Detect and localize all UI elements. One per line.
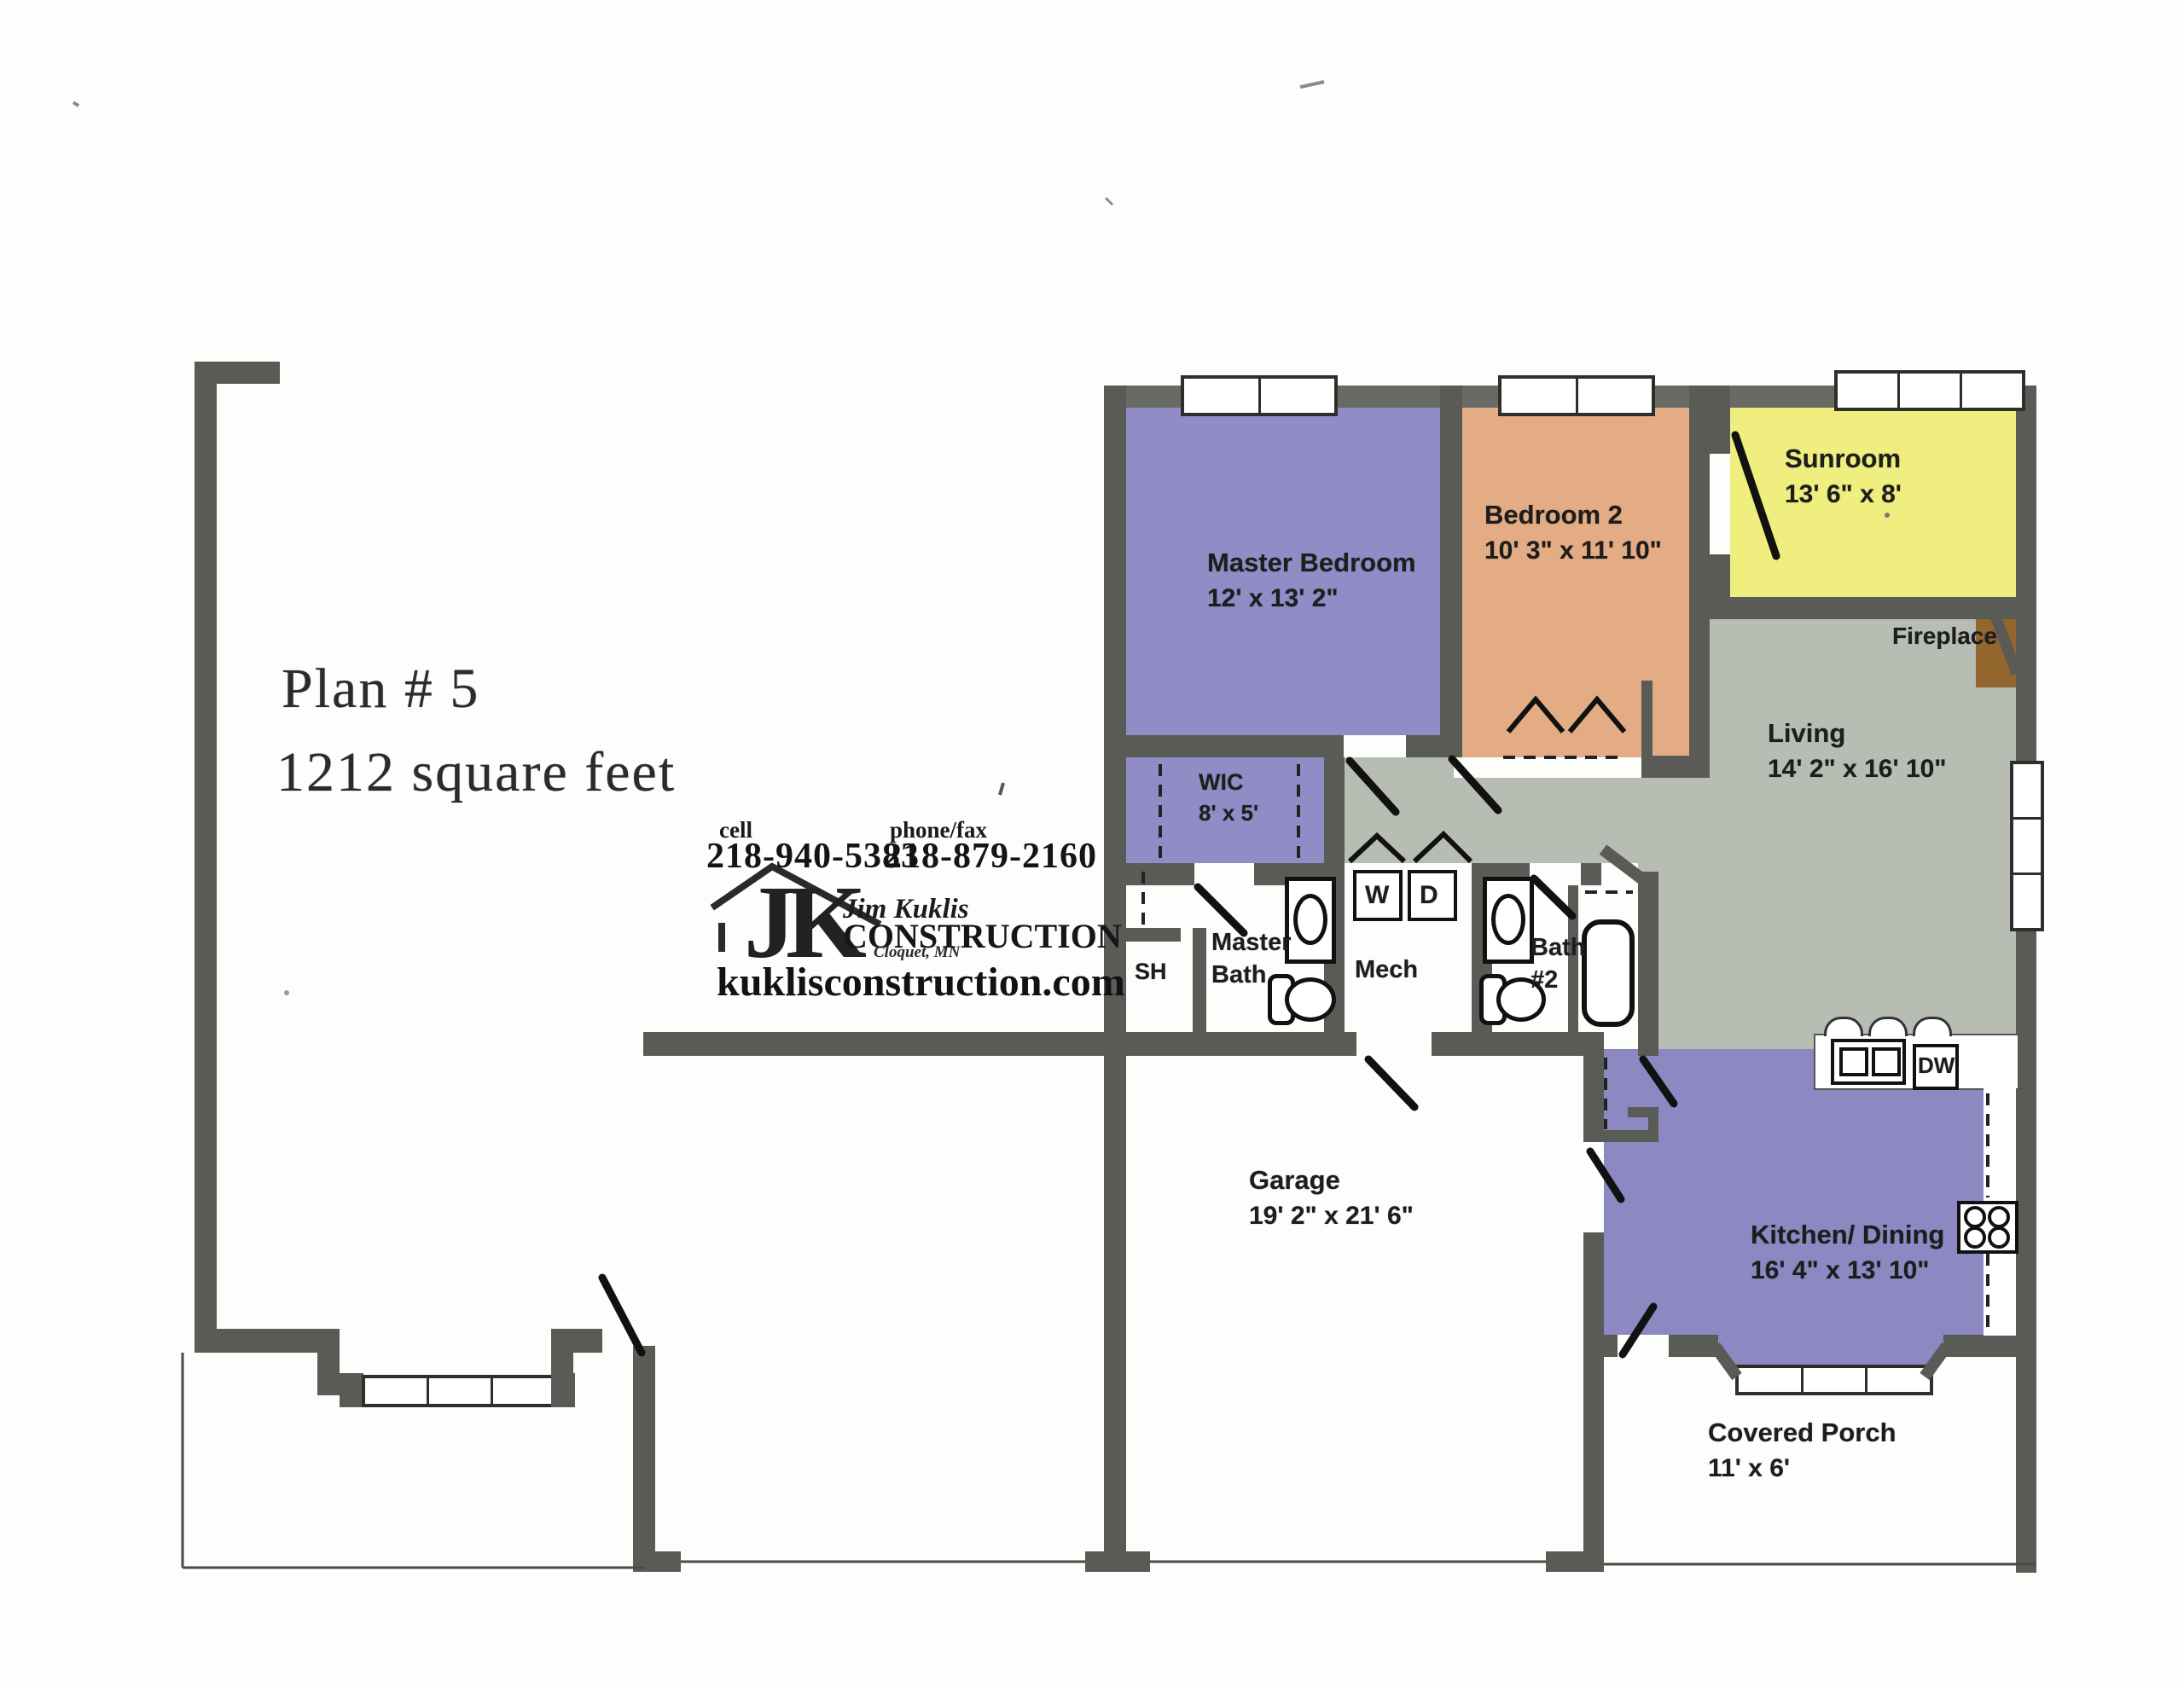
bath2-sink-bowl <box>1491 894 1525 945</box>
kitchen-porch-wall-c <box>1943 1335 2016 1357</box>
bedroom2-label: Bedroom 2 10' 3" x 11' 10" <box>1484 498 1662 568</box>
left-boundary-wall <box>195 362 217 1353</box>
bedroom2-right-wall <box>1689 386 1710 778</box>
sunroom-name: Sunroom <box>1785 443 1901 473</box>
garage-label: Garage 19' 2" x 21' 6" <box>1249 1163 1414 1233</box>
stove-burner-3 <box>1964 1226 1986 1249</box>
plan-title: Plan # 5 <box>282 657 479 722</box>
garage-bottom-wall-b <box>1085 1551 1150 1572</box>
bay-left-jamb <box>340 1373 363 1407</box>
garage-dims: 19' 2" x 21' 6" <box>1249 1202 1414 1230</box>
pantry-l-wall-v <box>1648 1107 1658 1141</box>
fireplace-label: Fireplace <box>1892 621 1997 652</box>
bay-left-step-wall <box>317 1329 340 1395</box>
stove-burner-1 <box>1964 1206 1986 1228</box>
website-text: kuklisconstruction.com <box>717 959 1125 1006</box>
sunroom-dims: 13' 6" x 8' <box>1785 480 1902 508</box>
hall-floor-2 <box>1454 778 1689 863</box>
bath2-label: Bath #2 <box>1531 931 1585 997</box>
bedroom2-window <box>1498 375 1655 416</box>
living-dims: 14' 2" x 16' 10" <box>1768 755 1947 783</box>
top-left-stub-wall <box>195 362 280 384</box>
garage-top-wall-b <box>1432 1032 1604 1056</box>
master-bath-line2: Bath <box>1211 961 1266 988</box>
living-floor-2 <box>1638 863 2016 1049</box>
plan-sqft: 1212 square feet <box>276 740 676 805</box>
shower-label: SH <box>1135 957 1167 988</box>
shower-top-wall <box>1126 928 1181 942</box>
hall-floor <box>1345 757 1454 863</box>
master-bedroom-label: Master Bedroom 12' x 13' 2" <box>1207 546 1416 616</box>
living-label: Living 14' 2" x 16' 10" <box>1768 716 1947 786</box>
dryer-label: D <box>1420 878 1438 913</box>
sunroom-label: Sunroom 13' 6" x 8' <box>1785 442 1902 512</box>
kitchen-name: Kitchen/ Dining <box>1751 1220 1944 1249</box>
floor-plan-page: Plan # 5 1212 square feet cell 218-940-5… <box>0 0 2184 1687</box>
mb-bottom-wall-a <box>1126 735 1344 757</box>
kitchen-dims: 16' 4" x 13' 10" <box>1751 1256 1930 1284</box>
porch-label: Covered Porch 11' x 6' <box>1708 1416 1896 1486</box>
phonefax-number: 218-879-2160 <box>884 836 1097 877</box>
master-bath-line1: Master <box>1211 929 1292 956</box>
bedroom2-floor <box>1461 408 1689 757</box>
porch-name: Covered Porch <box>1708 1417 1896 1447</box>
porch-dims: 11' x 6' <box>1708 1454 1790 1482</box>
bath2-line1: Bath <box>1531 934 1585 961</box>
mb-bedroom2-wall <box>1440 386 1462 757</box>
garage-name: Garage <box>1249 1165 1340 1195</box>
pantry-bottom-wall <box>1583 1130 1658 1142</box>
bath2-line2: #2 <box>1531 966 1558 994</box>
pad-side-stub-wall <box>633 1346 655 1572</box>
master-bedroom-dims: 12' x 13' 2" <box>1207 584 1339 612</box>
kitchen-label: Kitchen/ Dining 16' 4" x 13' 10" <box>1751 1218 1944 1288</box>
kitchen-porch-wall-b <box>1669 1335 1718 1357</box>
entry-side-wall <box>551 1329 602 1353</box>
mech-label: Mech <box>1355 954 1418 986</box>
garage-right-wall-b <box>1583 1232 1604 1572</box>
kitchen-sink-basin-right <box>1872 1047 1901 1076</box>
master-bath-sink-bowl <box>1293 894 1327 945</box>
kitchen-floor <box>1604 1049 2016 1335</box>
bedroom2-dims: 10' 3" x 11' 10" <box>1484 536 1662 565</box>
bedroom2-corner-wall <box>1641 756 1710 778</box>
sunroom-bottom-wall <box>1710 597 2036 619</box>
bath2-top-wall-b <box>1581 863 1601 885</box>
bedroom2-name: Bedroom 2 <box>1484 500 1623 530</box>
garage-right-wall-a <box>1583 1032 1604 1137</box>
bathtub <box>1582 919 1635 1027</box>
wic-dims: 8' x 5' <box>1199 800 1258 826</box>
sunroom-window <box>1834 370 2025 411</box>
washer-label: W <box>1365 878 1389 913</box>
garage-bottom-wall-c <box>1546 1551 1604 1572</box>
kitchen-porch-wall-a <box>1604 1335 1618 1357</box>
garage-top-wall-a <box>643 1032 1356 1056</box>
bath2-right-wall <box>1638 872 1658 1056</box>
wic-bottom-wall-a <box>1126 863 1194 885</box>
front-bay-window <box>362 1375 558 1407</box>
house-right-wall <box>2016 386 2036 1573</box>
kitchen-bay-window <box>1735 1365 1933 1395</box>
living-name: Living <box>1768 718 1845 748</box>
mb-bottom-wall-b <box>1406 735 1440 757</box>
garage-bottom-wall-a <box>633 1551 681 1572</box>
living-window <box>2010 761 2044 931</box>
master-bath-toilet-bowl <box>1285 977 1336 1022</box>
dishwasher-label: DW <box>1918 1051 1955 1080</box>
master-bedroom-name: Master Bedroom <box>1207 548 1416 577</box>
master-bedroom-window <box>1181 375 1338 416</box>
master-bath-label: Master Bath <box>1211 926 1292 992</box>
stove-burner-4 <box>1988 1226 2010 1249</box>
sunroom-left-wall-a <box>1710 386 1730 454</box>
wic-name: WIC <box>1199 769 1243 795</box>
stove-burner-2 <box>1988 1206 2010 1228</box>
kitchen-sink-basin-left <box>1839 1047 1868 1076</box>
wic-label: WIC 8' x 5' <box>1199 768 1258 828</box>
